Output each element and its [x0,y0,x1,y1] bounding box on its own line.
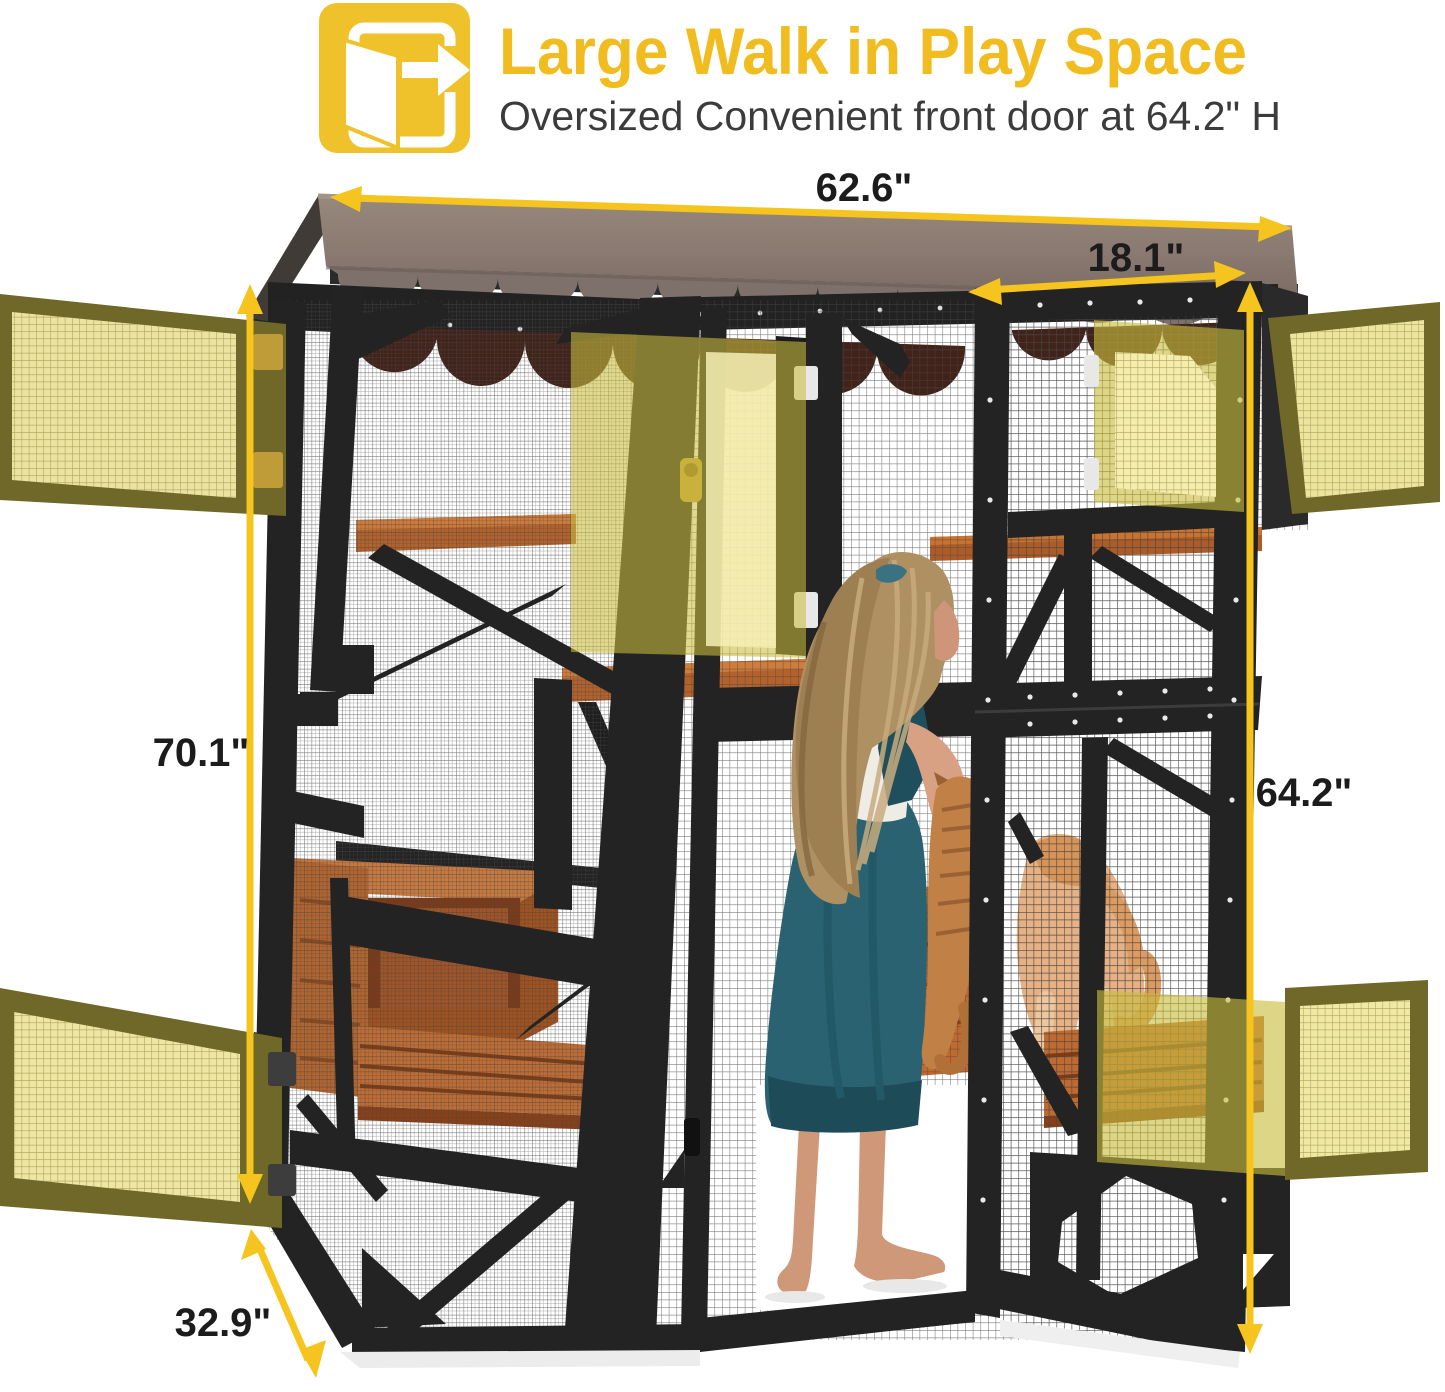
svg-text:62.6": 62.6" [816,166,913,210]
svg-text:32.9": 32.9" [175,1301,272,1345]
svg-text:18.1": 18.1" [1088,236,1185,280]
svg-text:Oversized Convenient front doo: Oversized Convenient front door at 64.2"… [499,93,1281,139]
svg-text:70.1": 70.1" [153,731,250,775]
svg-text:Large Walk in Play Space: Large Walk in Play Space [499,14,1247,88]
svg-text:64.2": 64.2" [1256,771,1353,815]
